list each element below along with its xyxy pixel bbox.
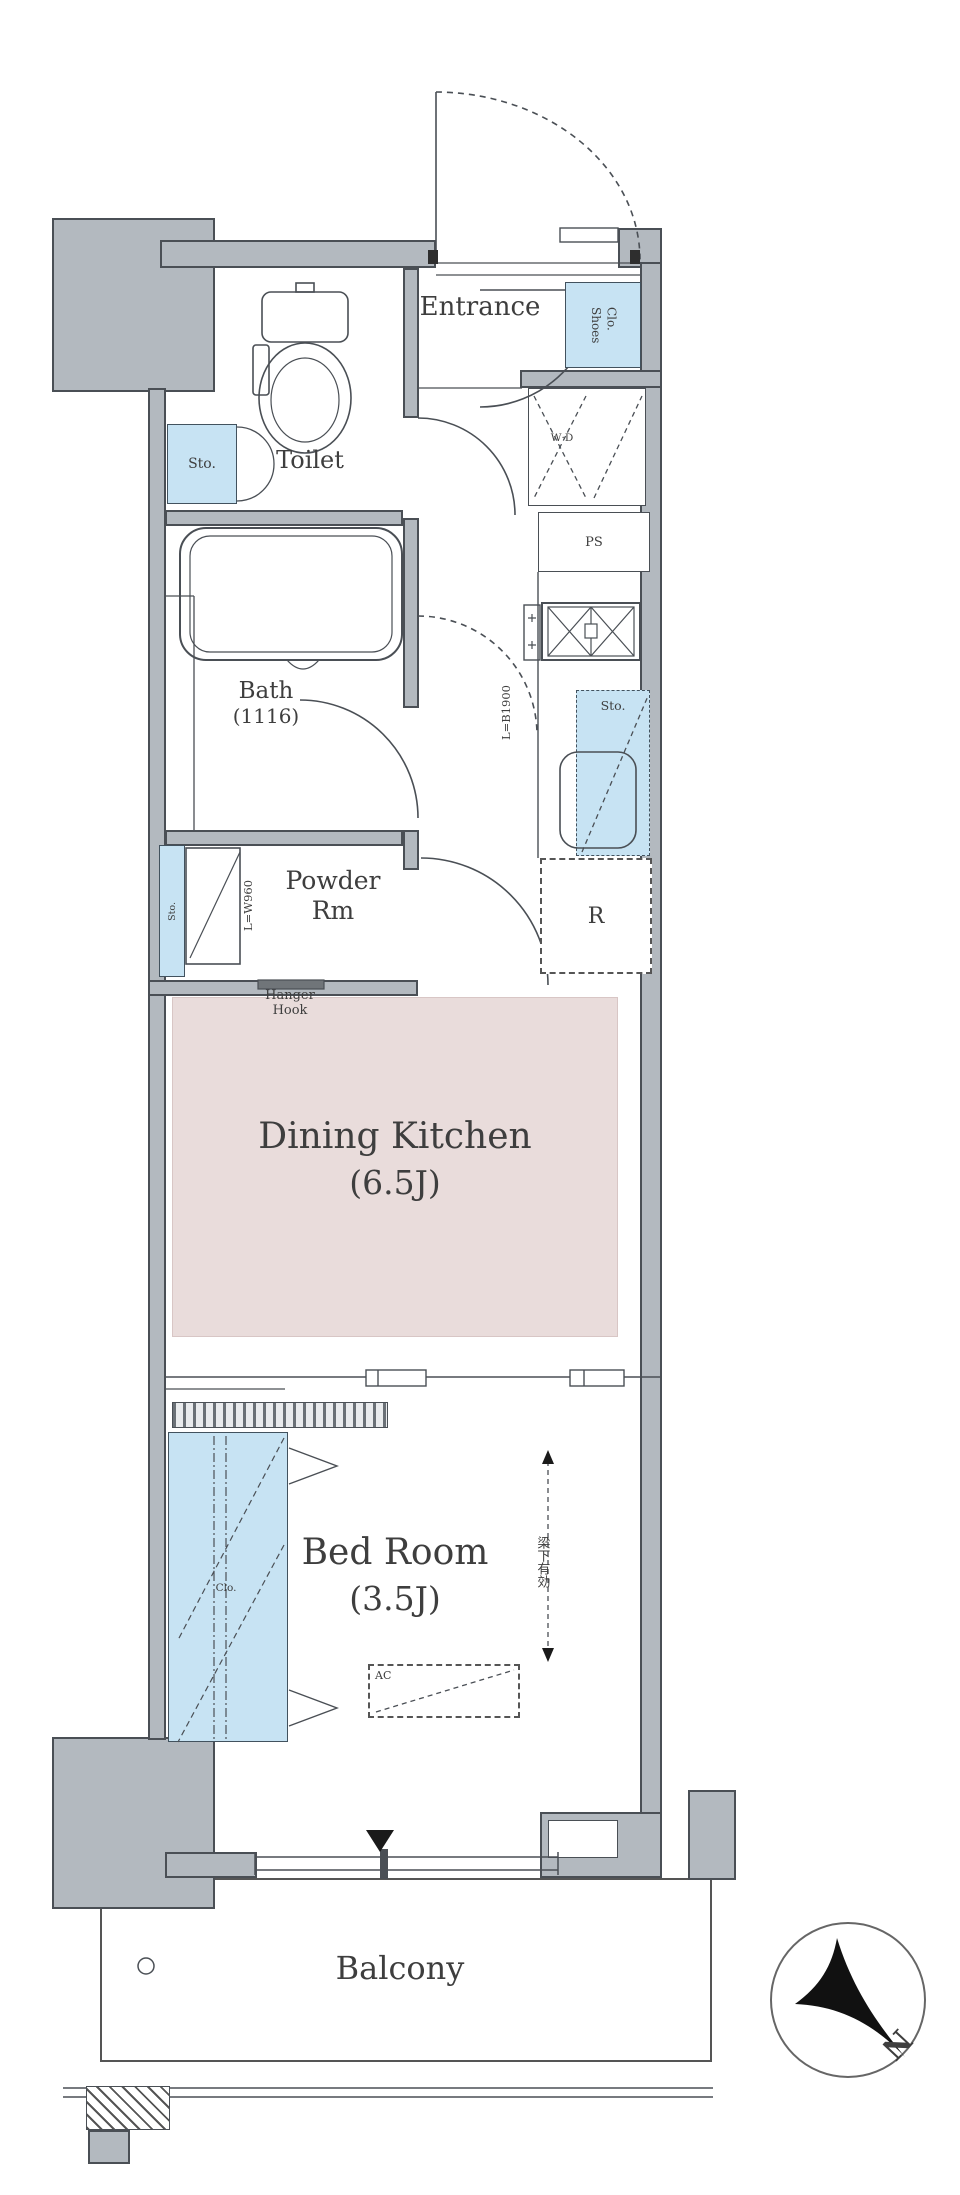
floor-plan: Shoes Clo. Sto. Sto. Sto. Sto. Clo. W·D …	[0, 0, 960, 2195]
toilet-label: Toilet	[250, 446, 370, 474]
closet-top-vent	[172, 1402, 388, 1428]
bath-size: (1116)	[196, 705, 336, 729]
wall-toilet-bath	[165, 510, 403, 526]
bedroom-name: Bed Room	[220, 1532, 570, 1574]
wall-balcony-right	[688, 1790, 736, 1880]
refrigerator-label: R	[588, 904, 605, 929]
compass-north-label: N	[869, 2017, 922, 2070]
balcony-label: Balcony	[312, 1950, 488, 1988]
dk-name: Dining Kitchen	[222, 1116, 568, 1158]
wall-bath-powder	[165, 830, 403, 846]
wall-balcony-stub	[88, 2130, 130, 2164]
partition-dk-bedroom	[165, 1370, 660, 1389]
entrance-door	[428, 92, 640, 275]
balcony-window	[255, 1830, 558, 1879]
shoes-closet-label: Shoes Clo.	[587, 307, 618, 343]
powder-storage-label: Sto.	[167, 902, 178, 921]
wall-top	[160, 240, 436, 268]
wall-left	[148, 388, 166, 1740]
vanity-width-label: L=W960	[242, 858, 256, 953]
washer-dryer-box	[528, 388, 646, 506]
pipe-space-label: PS	[585, 535, 603, 550]
dk-size: (6.5J)	[222, 1164, 568, 1203]
bedroom-label: Bed Room (3.5J)	[220, 1532, 570, 1619]
window-step-box	[548, 1820, 618, 1858]
shoes-closet-box: Shoes Clo.	[565, 282, 641, 368]
wall-bedroom-bottom-left	[165, 1852, 257, 1878]
balcony-hatch	[86, 2086, 170, 2130]
hall-door-dashed	[418, 616, 537, 735]
toilet-fixture	[253, 283, 351, 453]
beam-clearance-label: 梁下有効	[534, 1512, 549, 1612]
sink-storage-box: Sto.	[576, 690, 650, 856]
air-conditioner-label: AC	[375, 1669, 391, 1682]
toilet-storage-box: Sto.	[167, 424, 237, 504]
pillar-bottom-left	[52, 1737, 215, 1909]
air-conditioner-box: AC	[368, 1664, 520, 1718]
sink-storage-label: Sto.	[577, 699, 649, 714]
toilet-storage-label: Sto.	[188, 456, 216, 472]
entrance-label: Entrance	[398, 292, 562, 323]
powder-storage-strip: Sto.	[159, 845, 185, 977]
wall-powder-right-stub	[403, 830, 419, 870]
kitchen-length-label: L=B1900	[500, 660, 514, 765]
wall-toilet-right-upper	[403, 268, 419, 418]
wall-kitchen-top	[520, 370, 662, 388]
bath-name: Bath	[196, 678, 336, 705]
refrigerator-box: R	[540, 858, 652, 974]
pipe-space-box: PS	[538, 512, 650, 572]
dining-kitchen-label: Dining Kitchen (6.5J)	[222, 1116, 568, 1203]
washer-dryer-label: W·D	[538, 432, 586, 444]
bath-label: Bath (1116)	[196, 678, 336, 729]
powder-room-label: Powder Rm	[258, 866, 408, 925]
wall-toilet-right-lower	[403, 518, 419, 708]
bedroom-size: (3.5J)	[220, 1580, 570, 1619]
hanger-hook-label: Hanger Hook	[244, 988, 336, 1019]
